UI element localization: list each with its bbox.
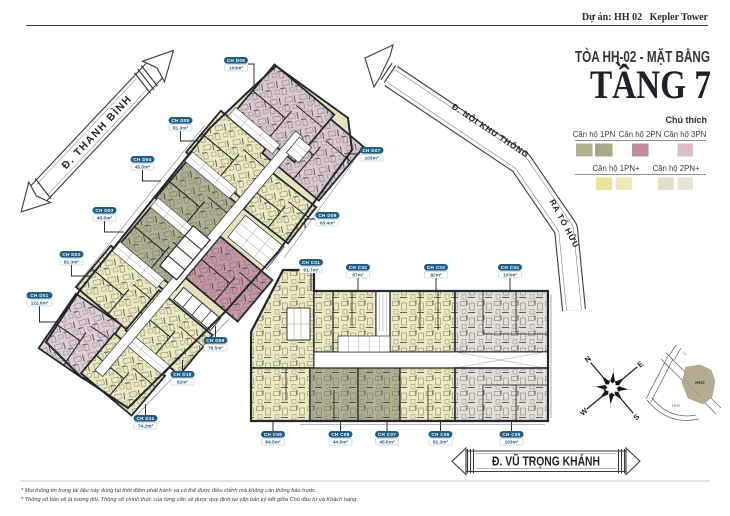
svg-text:CH C03: CH C03 (427, 265, 445, 270)
svg-text:CH C01: CH C01 (302, 260, 320, 265)
svg-text:103m²: 103m² (505, 440, 519, 446)
svg-text:84.5m²: 84.5m² (265, 440, 281, 446)
svg-text:103m²: 103m² (503, 273, 517, 279)
svg-text:45.6m²: 45.6m² (379, 440, 395, 446)
svg-text:91.7m²: 91.7m² (303, 268, 319, 274)
svg-text:74.2m²: 74.2m² (138, 424, 154, 430)
svg-text:CH D07: CH D07 (362, 148, 380, 153)
svg-text:CH D04: CH D04 (133, 157, 151, 162)
svg-text:CH C02: CH C02 (349, 265, 367, 270)
svg-text:45.5m²: 45.5m² (97, 216, 113, 222)
svg-text:Căn hộ 2PN+: Căn hộ 2PN+ (652, 164, 699, 173)
svg-text:* Thông số bản vẽ là tương đối: * Thông số bản vẽ là tương đối. Thông số… (21, 496, 358, 503)
svg-text:Căn hộ 2PN: Căn hộ 2PN (619, 130, 661, 139)
svg-text:TẦNG 7: TẦNG 7 (590, 62, 711, 107)
svg-text:82m²: 82m² (177, 380, 189, 386)
svg-text:81.3m²: 81.3m² (64, 260, 80, 266)
svg-text:Căn hộ 1PN: Căn hộ 1PN (573, 130, 615, 139)
svg-text:81.3m²: 81.3m² (433, 440, 449, 446)
svg-text:103m²: 103m² (229, 66, 243, 72)
svg-text:81.3m²: 81.3m² (173, 126, 189, 132)
svg-text:HH1: HH1 (672, 403, 681, 408)
svg-text:CH C07: CH C07 (378, 432, 396, 437)
svg-text:82m²: 82m² (430, 273, 442, 279)
svg-text:CH C05: CH C05 (502, 432, 520, 437)
svg-text:Đ. VŨ TRỌNG KHÁNH: Đ. VŨ TRỌNG KHÁNH (492, 454, 600, 469)
svg-text:CH D10: CH D10 (173, 372, 191, 377)
svg-text:CH D08: CH D08 (318, 213, 336, 218)
svg-text:CH D01: CH D01 (30, 293, 48, 298)
svg-text:CH C06: CH C06 (431, 432, 449, 437)
svg-text:78.5m²: 78.5m² (208, 346, 224, 352)
svg-text:Căn hộ 3PN: Căn hộ 3PN (664, 130, 706, 139)
svg-text:CH D09: CH D09 (206, 338, 224, 343)
svg-text:CH C08: CH C08 (331, 432, 349, 437)
svg-text:* Mọi thông tin trong tài liệu: * Mọi thông tin trong tài liệu này đúng … (21, 487, 317, 494)
svg-text:Chú thích: Chú thích (666, 115, 708, 125)
svg-text:HH2: HH2 (695, 380, 705, 386)
svg-text:65.4m²: 65.4m² (320, 221, 336, 227)
svg-text:67m²: 67m² (352, 273, 364, 279)
svg-text:45.5m²: 45.5m² (135, 165, 151, 171)
svg-text:Dự án: HH 02 Kepler Tower: Dự án: HH 02 Kepler Tower (582, 12, 709, 23)
svg-text:103m²: 103m² (365, 156, 379, 162)
svg-text:CH D03: CH D03 (95, 208, 113, 213)
svg-text:CH D11: CH D11 (137, 416, 155, 421)
svg-text:44.5m²: 44.5m² (333, 440, 349, 446)
svg-text:CH D05: CH D05 (171, 118, 189, 123)
svg-text:Căn hộ 1PN+: Căn hộ 1PN+ (592, 164, 639, 173)
svg-text:CH C04: CH C04 (501, 265, 519, 270)
svg-text:122.6m²: 122.6m² (31, 301, 49, 307)
svg-text:CH D06: CH D06 (227, 58, 245, 63)
svg-text:CH C09: CH C09 (264, 432, 282, 437)
svg-text:CH D02: CH D02 (62, 252, 80, 257)
